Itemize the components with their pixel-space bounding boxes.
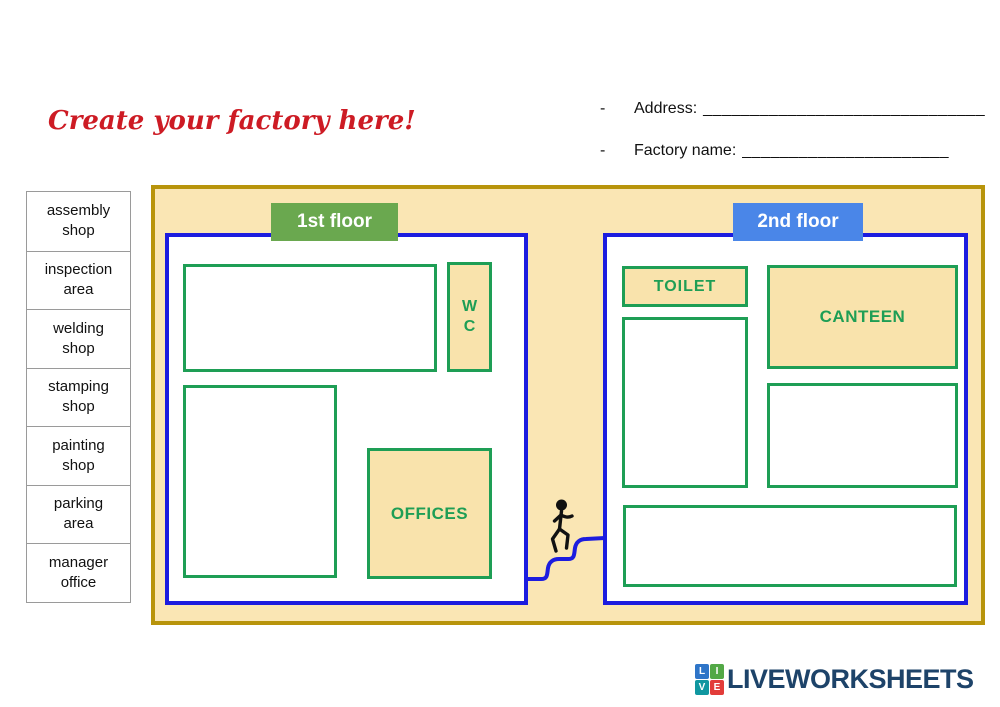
word-bank-item-assembly-shop[interactable]: assembly shop — [27, 192, 130, 251]
logo-tile-v: V — [695, 680, 709, 695]
wc-label: W C — [462, 297, 477, 337]
floor1-outline: W C OFFICES — [165, 233, 528, 605]
floor2-header: 2nd floor — [733, 203, 863, 241]
factory-name-row: - Factory name: ______________________ — [600, 142, 990, 160]
liveworksheets-logo-text: LIVEWORKSHEETS — [727, 664, 974, 695]
page-title: Create your factory here! — [48, 106, 416, 136]
word-bank-item-manager-office[interactable]: manager office — [27, 543, 130, 602]
floor2-room-canteen: CANTEEN — [767, 265, 958, 369]
liveworksheets-logo[interactable]: L I V E LIVEWORKSHEETS — [695, 664, 974, 695]
logo-tile-l: L — [695, 664, 709, 679]
address-row: - Address: _____________________________… — [600, 100, 990, 118]
logo-tile-e: E — [710, 680, 724, 695]
floor1-room-wc: W C — [447, 262, 492, 372]
floor2-room-blank-middle[interactable] — [767, 383, 958, 488]
factory-canvas: 1st floor 2nd floor W C OFFICES TOILET C… — [151, 185, 985, 625]
word-bank-item-painting-shop[interactable]: painting shop — [27, 426, 130, 485]
factory-name-blank-line[interactable]: ______________________ — [742, 142, 949, 160]
logo-tile-i: I — [710, 664, 724, 679]
address-label: Address: — [634, 100, 697, 118]
floor2-room-toilet: TOILET — [622, 266, 748, 307]
liveworksheets-logo-icon: L I V E — [695, 664, 724, 695]
toilet-label: TOILET — [654, 277, 717, 297]
factory-name-label: Factory name: — [634, 142, 736, 160]
floor2-outline: TOILET CANTEEN — [603, 233, 968, 605]
offices-label: OFFICES — [391, 503, 468, 524]
floor2-room-blank-bottom[interactable] — [623, 505, 957, 587]
word-bank-item-inspection-area[interactable]: inspection area — [27, 251, 130, 310]
word-bank-item-stamping-shop[interactable]: stamping shop — [27, 368, 130, 427]
word-bank-item-welding-shop[interactable]: welding shop — [27, 309, 130, 368]
floor1-header: 1st floor — [271, 203, 398, 241]
floor1-room-offices: OFFICES — [367, 448, 492, 579]
canteen-label: CANTEEN — [820, 306, 906, 327]
word-bank: assembly shop inspection area welding sh… — [26, 191, 131, 603]
floor2-room-blank-left[interactable] — [622, 317, 748, 488]
bullet-dash: - — [600, 142, 634, 160]
header-form: - Address: _____________________________… — [600, 100, 990, 184]
floor1-room-blank-top[interactable] — [183, 264, 437, 372]
address-blank-line[interactable]: ______________________________ — [703, 100, 985, 118]
word-bank-item-parking-area[interactable]: parking area — [27, 485, 130, 544]
walking-person-icon — [545, 498, 579, 554]
bullet-dash: - — [600, 100, 634, 118]
floor1-room-blank-left[interactable] — [183, 385, 337, 578]
